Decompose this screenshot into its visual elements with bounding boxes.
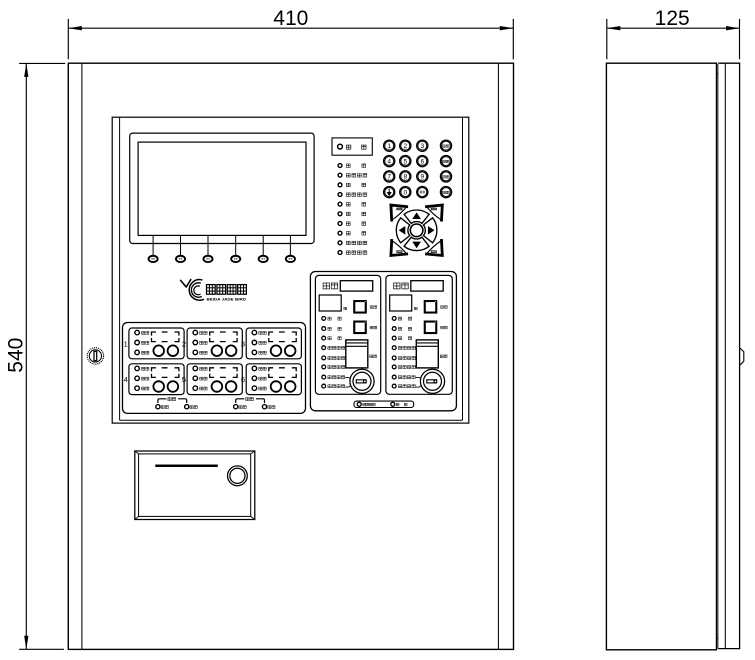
svg-text:BEIDA JADE BIRD: BEIDA JADE BIRD <box>207 297 247 302</box>
svg-text:4: 4 <box>124 375 128 384</box>
svg-text:6: 6 <box>241 375 245 384</box>
svg-text:1: 1 <box>124 339 128 348</box>
svg-text:0: 0 <box>403 189 407 196</box>
svg-text:5: 5 <box>182 375 186 384</box>
svg-text:2: 2 <box>182 339 186 348</box>
svg-text:3: 3 <box>241 339 245 348</box>
svg-text:410: 410 <box>273 7 308 30</box>
svg-text:540: 540 <box>4 338 27 373</box>
svg-text:125: 125 <box>655 7 690 30</box>
